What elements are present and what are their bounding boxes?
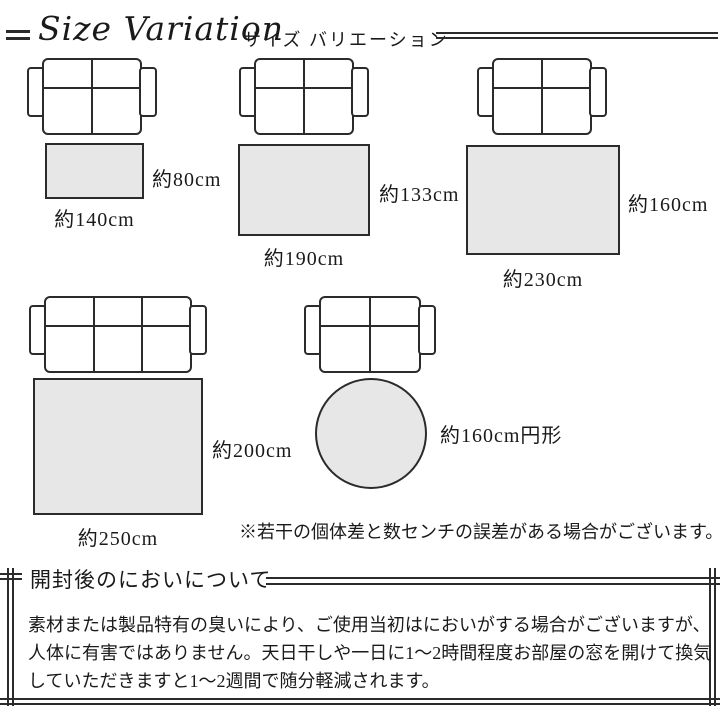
rug-depth-label: 約133cm <box>379 178 459 207</box>
sofa-body <box>44 296 192 373</box>
sofa-backrest <box>494 60 590 89</box>
rug-depth-label: 約200cm <box>212 434 292 463</box>
sofa-back-cushion <box>256 60 305 87</box>
rug-rect-190x133 <box>238 144 370 236</box>
sofa-back-cushion <box>494 60 543 87</box>
sofa-seats <box>494 89 590 133</box>
sofa-body <box>492 58 592 135</box>
sofa-back-cushion <box>44 60 93 87</box>
rug-rect-250x200 <box>33 378 203 515</box>
sofa-seat-cushion <box>494 89 543 133</box>
sofa-top-view-2seat <box>27 58 157 135</box>
sofa-top-view-2seat <box>239 58 369 135</box>
sofa-backrest <box>44 60 140 89</box>
sofa-back-cushion <box>321 298 371 325</box>
sofa-seats <box>46 327 190 371</box>
page-subtitle: サイズ バリエーション <box>243 26 449 52</box>
sofa-back-cushion <box>371 298 419 325</box>
sofa-seats <box>44 89 140 133</box>
rug-rect-140x80 <box>45 143 144 199</box>
odor-body-line: 素材または製品特有の臭いにより、ご使用当初はにおいがする場合がございますが、 <box>28 611 711 639</box>
rug-size-label: 約160cm円形 <box>440 419 562 448</box>
odor-heading-double-rule <box>266 577 720 585</box>
sofa-seat-cushion <box>543 89 590 133</box>
sofa-back-cushion <box>95 298 144 325</box>
sofa-seat-cushion <box>256 89 305 133</box>
sofa-seats <box>321 327 419 371</box>
sofa-backrest <box>321 298 419 327</box>
sofa-seat-cushion <box>44 89 93 133</box>
odor-section-body: 素材または製品特有の臭いにより、ご使用当初はにおいがする場合がございますが、 人… <box>28 611 711 695</box>
sofa-armrest-right <box>418 305 436 355</box>
sofa-back-cushion <box>543 60 590 87</box>
odor-body-line: していただきますと1〜2週間で随分軽減されます。 <box>28 667 711 695</box>
sofa-seat-cushion <box>93 89 140 133</box>
double-line-mark-icon <box>6 30 30 40</box>
sofa-seats <box>256 89 352 133</box>
sofa-seat-cushion <box>321 327 371 371</box>
odor-box-left-border <box>7 568 14 706</box>
sofa-armrest-right <box>189 305 207 355</box>
sofa-back-cushion <box>305 60 352 87</box>
rug-circle-160 <box>315 378 427 489</box>
rug-depth-label: 約160cm <box>628 188 708 217</box>
sofa-body <box>319 296 421 373</box>
rug-size-variation-page: Size Variation サイズ バリエーション 約140cm 約80cm … <box>0 0 720 720</box>
sofa-body <box>42 58 142 135</box>
sofa-body <box>254 58 354 135</box>
odor-section-heading: 開封後のにおいについて <box>30 564 271 594</box>
sofa-seat-cushion <box>46 327 95 371</box>
odor-box-top-left-mark <box>0 573 22 580</box>
odor-box-bottom-border <box>0 698 720 705</box>
sofa-back-cushion <box>46 298 95 325</box>
sofa-armrest-right <box>351 67 369 117</box>
sofa-back-cushion <box>143 298 190 325</box>
sofa-back-cushion <box>93 60 140 87</box>
sofa-top-view-2seat <box>477 58 607 135</box>
sofa-seat-cushion <box>371 327 419 371</box>
rug-width-label: 約190cm <box>238 242 370 271</box>
double-line-rule <box>436 32 718 39</box>
sofa-armrest-right <box>139 67 157 117</box>
rug-rect-230x160 <box>466 145 620 255</box>
sofa-backrest <box>46 298 190 327</box>
rug-width-label: 約230cm <box>466 263 620 292</box>
odor-body-line: 人体に有害ではありません。天日干しや一日に1〜2時間程度お部屋の窓を開けて換気 <box>28 639 711 667</box>
sofa-seat-cushion <box>143 327 190 371</box>
sofa-seat-cushion <box>305 89 352 133</box>
rug-width-label: 約140cm <box>45 203 144 232</box>
sofa-top-view-3seat <box>29 296 207 373</box>
rug-depth-label: 約80cm <box>152 163 221 192</box>
sofa-seat-cushion <box>95 327 144 371</box>
sofa-top-view-2seat <box>304 296 436 373</box>
size-disclaimer-note: ※若干の個体差と数センチの誤差がある場合がございます。 <box>239 518 720 544</box>
sofa-armrest-right <box>589 67 607 117</box>
rug-width-label: 約250cm <box>33 522 203 551</box>
sofa-backrest <box>256 60 352 89</box>
